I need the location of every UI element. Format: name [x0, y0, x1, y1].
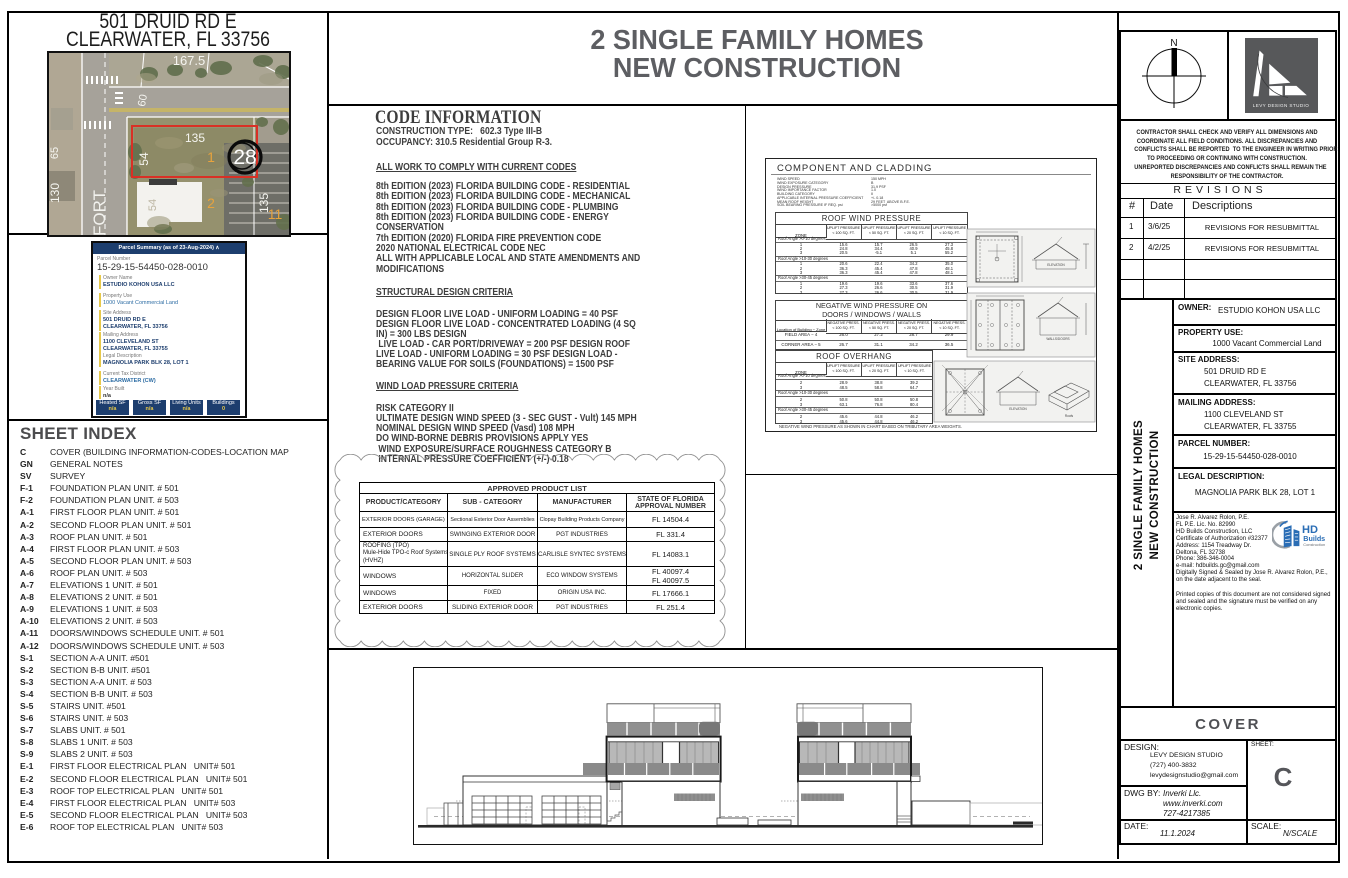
svg-text:ELEVATION: ELEVATION [1047, 263, 1065, 267]
svg-text:1: 1 [207, 149, 215, 165]
svg-text:167.5: 167.5 [173, 53, 206, 68]
svg-text:N: N [1170, 38, 1177, 49]
svg-text:54: 54 [147, 199, 159, 211]
svg-text:28: 28 [233, 146, 256, 169]
svg-text:65: 65 [49, 147, 61, 159]
svg-text:135: 135 [257, 193, 271, 213]
svg-text:135: 135 [185, 131, 205, 145]
svg-text:130: 130 [49, 183, 62, 203]
svg-text:2: 2 [207, 195, 215, 211]
svg-text:WALLS/DOORS: WALLS/DOORS [1046, 337, 1069, 341]
svg-text:54: 54 [137, 152, 151, 166]
svg-text:Roofs: Roofs [1065, 414, 1074, 418]
svg-text:60: 60 [136, 93, 150, 107]
svg-text:LEVY DESIGN STUDIO: LEVY DESIGN STUDIO [1253, 103, 1309, 108]
svg-text:Construction: Construction [1303, 542, 1325, 547]
svg-text:FORT: FORT [90, 190, 109, 235]
svg-text:ELEVATION: ELEVATION [1009, 407, 1027, 411]
